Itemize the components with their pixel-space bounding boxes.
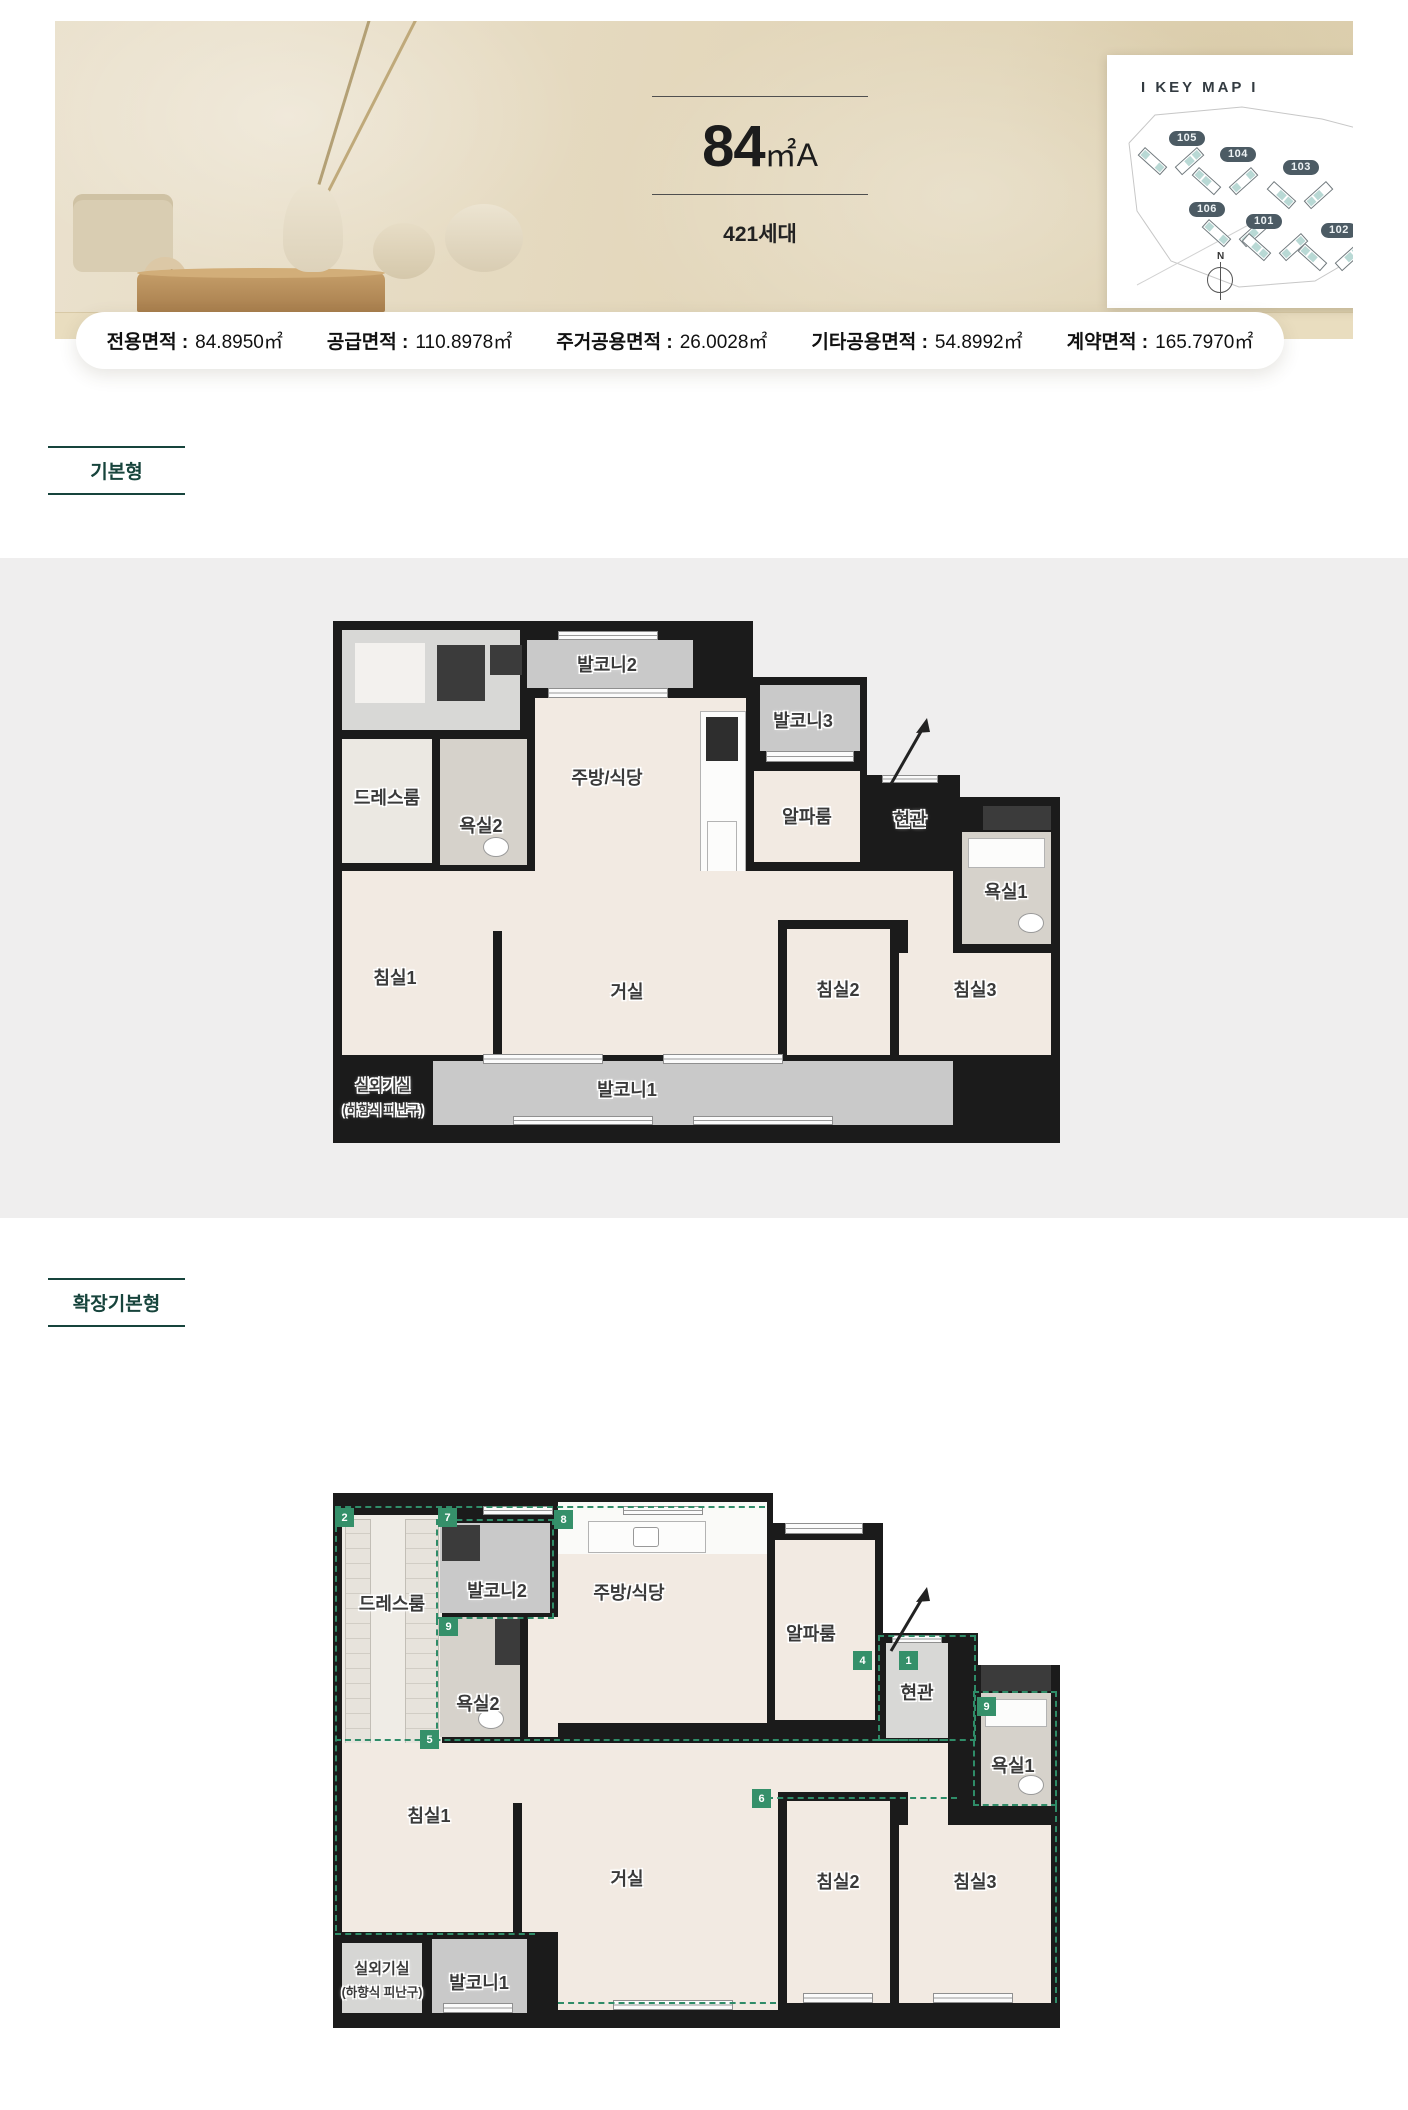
unit-size-unit: ㎡A xyxy=(765,137,818,173)
closet-area xyxy=(355,643,425,703)
room-label-dressroom: 드레스룸 xyxy=(354,784,420,810)
extension-badge: 2 xyxy=(335,1508,354,1527)
unit-type-title: 84㎡A xyxy=(652,96,868,195)
area-label: 기타공용면적 : xyxy=(811,332,928,353)
window xyxy=(663,1054,783,1064)
vase-decor xyxy=(373,223,435,279)
extension-dash-line xyxy=(335,1933,535,1935)
window xyxy=(803,1993,873,2003)
window xyxy=(443,2003,513,2013)
closet-column xyxy=(345,1519,371,1759)
room-label-bed2: 침실2 xyxy=(816,1868,859,1894)
interior-wall xyxy=(513,1803,522,1932)
window xyxy=(785,1523,863,1534)
extension-badge: 6 xyxy=(752,1789,771,1808)
toilet xyxy=(483,837,509,857)
room-label-bed1: 침실1 xyxy=(407,1802,450,1828)
room-bed3 xyxy=(899,953,1051,1055)
wood-stump-decor xyxy=(137,272,385,312)
building-badge-101: 101 xyxy=(1246,214,1282,229)
room-living-bed1 xyxy=(342,1743,778,1932)
room-label-balcony3: 발코니3 xyxy=(773,707,833,733)
building-shape-101 xyxy=(1247,229,1303,271)
area-item-exclusive: 전용면적 :84.8950㎡ xyxy=(107,327,283,354)
room-utility xyxy=(342,630,520,730)
building-shape-102 xyxy=(1303,239,1353,281)
floorplan-page: 84㎡A 421세대 I KEY MAP I 105 104 103 106 1… xyxy=(0,0,1408,2110)
room-label-entrance: 현관 xyxy=(900,1679,933,1705)
building-badge-106: 106 xyxy=(1189,202,1225,217)
extension-dash-line xyxy=(436,1619,438,1739)
room-label-alpha: 알파룸 xyxy=(782,803,832,829)
area-value: 110.8978㎡ xyxy=(415,332,512,353)
extension-dash-line xyxy=(558,2002,776,2004)
room-bed3 xyxy=(899,1825,1051,2003)
window xyxy=(693,1116,833,1125)
area-item-shared-other: 기타공용면적 :54.8992㎡ xyxy=(811,327,1022,354)
room-label-balcony1: 발코니1 xyxy=(449,1969,509,1995)
section-title-basic: 기본형 xyxy=(48,446,185,495)
floorplan-basic: 발코니2 발코니3 드레스룸 욕실2 주방/식당 알파룸 현관 욕실1 침실1 … xyxy=(333,621,1060,1143)
room-label-balcony2: 발코니2 xyxy=(467,1577,527,1603)
building-shape-104 xyxy=(1197,163,1253,205)
extension-badge: 1 xyxy=(899,1651,918,1670)
stove xyxy=(706,717,738,761)
room-label-bath1: 욕실1 xyxy=(991,1752,1034,1778)
room-label-alpha: 알파룸 xyxy=(786,1620,836,1646)
keymap-card: I KEY MAP I 105 104 103 106 101 102 xyxy=(1107,55,1353,308)
extension-badge: 9 xyxy=(977,1697,996,1716)
area-value: 165.7970㎡ xyxy=(1155,332,1253,353)
room-label-living: 거실 xyxy=(610,978,643,1004)
window xyxy=(766,751,854,762)
entrance-arrow-icon xyxy=(881,1585,941,1657)
extension-badge: 7 xyxy=(438,1508,457,1527)
room-label-bed3: 침실3 xyxy=(953,976,996,1002)
area-value: 26.0028㎡ xyxy=(680,332,768,353)
building-badge-104: 104 xyxy=(1220,147,1256,162)
room-label-outdoor-unit: 실외기실 xyxy=(354,1958,409,1979)
extension-dash-line xyxy=(335,1506,765,1508)
unit-size-number: 84 xyxy=(702,114,765,179)
header-banner: 84㎡A 421세대 I KEY MAP I 105 104 103 106 1… xyxy=(55,21,1353,339)
room-label-kitchen: 주방/식당 xyxy=(571,764,642,790)
corridor xyxy=(908,871,953,956)
room-label-bath2: 욕실2 xyxy=(456,1690,499,1716)
room-label-balcony1: 발코니1 xyxy=(597,1076,657,1102)
room-label-dressroom: 드레스룸 xyxy=(359,1590,425,1616)
kitchen-sink xyxy=(633,1527,659,1547)
room-label-kitchen: 주방/식당 xyxy=(593,1579,664,1605)
compass-icon xyxy=(1207,267,1233,293)
building-shape-103 xyxy=(1272,177,1328,219)
room-living-extension xyxy=(558,1923,778,2010)
extension-badge: 8 xyxy=(554,1510,573,1529)
area-item-shared-residential: 주거공용면적 :26.0028㎡ xyxy=(556,327,767,354)
area-label: 공급면적 : xyxy=(327,332,409,353)
building-shape-105 xyxy=(1143,143,1199,185)
household-count: 421세대 xyxy=(652,218,868,248)
area-info-bar: 전용면적 :84.8950㎡ 공급면적 :110.8978㎡ 주거공용면적 :2… xyxy=(76,312,1284,369)
wardrobe xyxy=(983,806,1051,830)
area-label: 주거공용면적 : xyxy=(556,332,673,353)
window xyxy=(483,1054,603,1064)
window xyxy=(558,631,658,640)
interior-wall xyxy=(493,931,502,1055)
area-value: 54.8992㎡ xyxy=(935,332,1023,353)
extension-dash-line xyxy=(767,1797,957,1799)
wardrobe xyxy=(495,1619,520,1665)
room-label-bed1: 침실1 xyxy=(373,964,416,990)
toilet xyxy=(1018,913,1044,933)
room-label-balcony2: 발코니2 xyxy=(577,651,637,677)
room-label-bed3: 침실3 xyxy=(953,1868,996,1894)
wardrobe xyxy=(981,1665,1051,1691)
area-label: 계약면적 : xyxy=(1067,332,1149,353)
window xyxy=(513,1116,653,1125)
building-badge-105: 105 xyxy=(1169,131,1205,146)
area-item-supply: 공급면적 :110.8978㎡ xyxy=(327,327,512,354)
room-label-hatch: (하향식 피난구) xyxy=(343,1100,424,1119)
section-title-extended: 확장기본형 xyxy=(48,1278,185,1327)
area-label: 전용면적 : xyxy=(107,332,189,353)
room-dressroom xyxy=(342,1515,442,1763)
vase-decor xyxy=(445,204,523,272)
room-label-bath1: 욕실1 xyxy=(984,878,1027,904)
room-label-entrance: 현관 xyxy=(893,806,926,832)
wardrobe xyxy=(437,645,485,701)
extension-badge: 4 xyxy=(853,1651,872,1670)
area-value: 84.8950㎡ xyxy=(195,332,283,353)
floorplan-extended: 2 7 8 9 5 4 1 9 6 드레스룸 발코니2 주방/식당 알파룸 현관… xyxy=(333,1493,1060,2028)
corridor xyxy=(908,1743,948,1828)
extension-badge: 5 xyxy=(420,1730,439,1749)
area-item-contract: 계약면적 :165.7970㎡ xyxy=(1067,327,1254,354)
building-badge-103: 103 xyxy=(1283,160,1319,175)
extension-dash-line xyxy=(1055,1806,1057,2003)
room-label-bed2: 침실2 xyxy=(816,976,859,1002)
extension-badge: 9 xyxy=(439,1617,458,1636)
bathtub xyxy=(968,838,1045,868)
wardrobe xyxy=(442,1525,480,1561)
corridor xyxy=(528,1617,558,1737)
room-bed2 xyxy=(787,1801,890,2003)
closet-column xyxy=(405,1519,439,1759)
entrance-arrow-icon xyxy=(881,716,941,791)
toilet xyxy=(1018,1775,1044,1795)
room-living-bed1 xyxy=(342,871,778,1055)
window xyxy=(548,688,668,698)
window xyxy=(933,1993,1013,2003)
room-label-living: 거실 xyxy=(610,1865,643,1891)
room-label-outdoor-unit: 실외기실 xyxy=(355,1075,410,1096)
room-label-bath2: 욕실2 xyxy=(459,812,502,838)
building-badge-102: 102 xyxy=(1321,223,1353,238)
vase-decor xyxy=(283,184,343,272)
extension-dash-line xyxy=(335,1506,337,1931)
wardrobe xyxy=(490,645,522,675)
room-label-hatch: (하향식 피난구) xyxy=(342,1982,423,2001)
